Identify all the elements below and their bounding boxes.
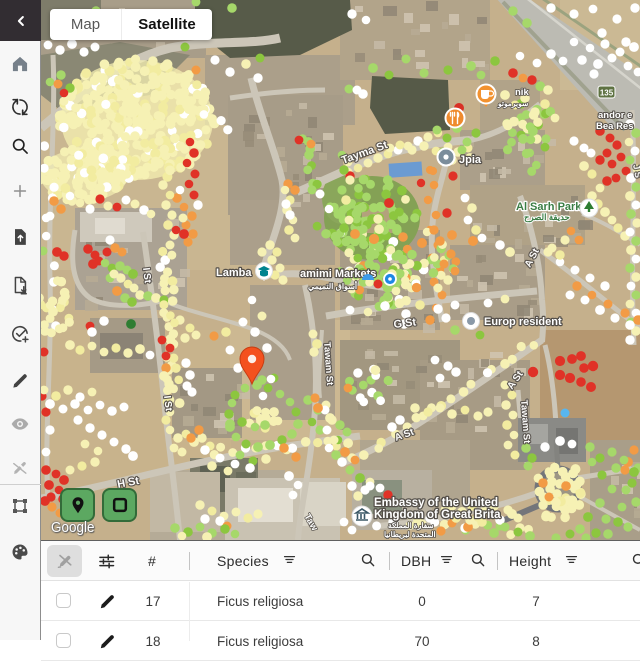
svg-text:I St: I St (140, 267, 153, 284)
svg-text:Europ resident: Europ resident (484, 316, 562, 328)
svg-text:andor e: andor e (598, 110, 632, 121)
svg-text:سوبرموتو: سوبرموتو (497, 99, 529, 109)
svg-text:Kingdom of Great Brita: Kingdom of Great Brita (374, 509, 501, 521)
svg-text:المتحدة لبريطانيا: المتحدة لبريطانيا (384, 530, 436, 540)
svg-text:I St: I St (161, 395, 174, 412)
svg-text:حديقة الصرح: حديقة الصرح (524, 212, 571, 223)
svg-text:135: 135 (600, 89, 614, 98)
svg-text:Jpia: Jpia (459, 154, 482, 166)
svg-text:Embassy of the United: Embassy of the United (374, 497, 498, 509)
svg-text:Bea Res: Bea Res (596, 121, 634, 132)
svg-text:Lamba: Lamba (216, 267, 252, 279)
svg-text:nik: nik (515, 87, 529, 98)
